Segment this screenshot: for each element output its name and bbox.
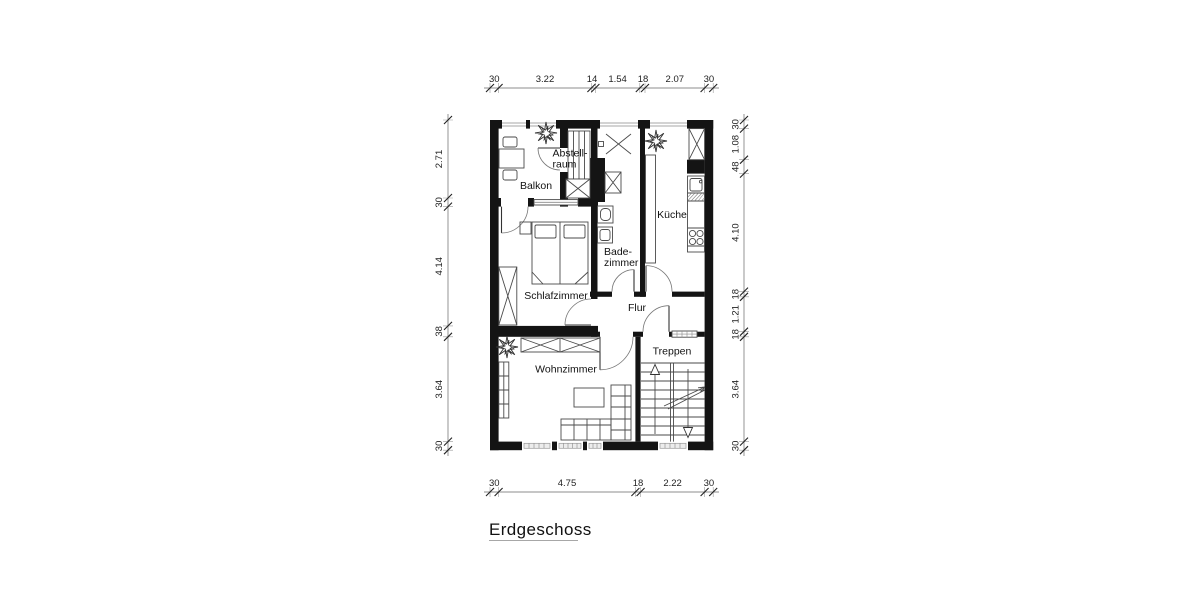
wall-right (705, 120, 714, 450)
dim-top-1: 3.22 (536, 74, 555, 85)
stove (689, 230, 703, 244)
dim-left-2: 4.14 (434, 257, 445, 276)
coffee-table (574, 388, 604, 407)
room-label-treppen: Treppen (653, 346, 692, 358)
dim-left-3: 38 (434, 326, 445, 337)
door-bathroom (612, 270, 634, 292)
window-livingroom-3 (589, 443, 601, 448)
dim-right-1: 1.08 (731, 135, 742, 154)
pillow (535, 225, 556, 238)
balcony-table (499, 149, 524, 168)
window-livingroom-1 (524, 443, 550, 448)
dim-bottom-3: 2.22 (663, 478, 682, 489)
floor-plan-drawing: Balkon Abstell- raum Küche Bade- zimmer … (0, 0, 1200, 600)
plan-title: Erdgeschoss (489, 520, 592, 539)
plant-icon (645, 130, 667, 152)
room-label-abstellraum-line2: raum (553, 159, 577, 171)
dim-right-2: 48 (731, 161, 742, 172)
dim-right-5: 1.21 (731, 305, 742, 324)
window-kitchen-top (650, 123, 687, 126)
dim-bottom-4: 30 (704, 478, 715, 489)
wall-niche-hall (672, 331, 697, 337)
entry-shaft (599, 134, 632, 154)
down-arrow-icon (684, 428, 693, 438)
room-label-wohnzimmer: Wohnzimmer (535, 364, 597, 376)
dim-bottom-1: 4.75 (558, 478, 577, 489)
window-bedroom-balcony (534, 200, 578, 205)
dim-right-7: 3.64 (731, 380, 742, 399)
window-livingroom-2 (559, 443, 581, 448)
room-label-kueche: Küche (657, 209, 687, 221)
bedroom-furniture (499, 222, 588, 325)
pillow (564, 225, 585, 238)
dimension-chain-left: 2.71 30 4.14 38 3.64 30 (434, 114, 453, 456)
door-hall-livingroom (600, 337, 633, 370)
sofa-corner (611, 385, 631, 440)
floor-plan-page: Balkon Abstell- raum Küche Bade- zimmer … (0, 0, 1200, 600)
dim-top-2: 14 (587, 74, 598, 85)
dimension-chain-bottom: 30 4.75 18 2.22 30 (484, 478, 719, 497)
kitchen-cabinet-row (646, 155, 656, 263)
dimension-chain-right: 30 1.08 48 4.10 18 1.21 18 3.64 30 (731, 114, 750, 456)
dim-right-8: 30 (731, 441, 742, 452)
plant-icon (535, 122, 557, 144)
dim-left-4: 3.64 (434, 380, 445, 399)
dim-right-3: 4.10 (731, 223, 742, 242)
window-entry-top (600, 123, 638, 126)
staircase (641, 363, 705, 442)
sideboard (521, 338, 600, 352)
dim-top-6: 30 (704, 74, 715, 85)
dim-right-6: 18 (731, 329, 742, 340)
dim-top-0: 30 (489, 74, 500, 85)
dim-bottom-0: 30 (489, 478, 500, 489)
balcony-chair (503, 170, 517, 180)
kitchen-fixtures (645, 129, 705, 263)
dim-left-0: 2.71 (434, 150, 445, 169)
sofa (561, 419, 611, 440)
door-balcony-bedroom (502, 207, 529, 233)
plant-icon (496, 336, 518, 358)
plan-title-block: Erdgeschoss (489, 520, 592, 541)
dimension-chain-top: 30 3.22 14 1.54 18 2.07 30 (484, 74, 719, 93)
door-kitchen (646, 266, 672, 292)
dim-left-5: 30 (434, 441, 445, 452)
dim-bottom-2: 18 (633, 478, 644, 489)
dim-right-4: 18 (731, 289, 742, 300)
living-room-furniture (496, 336, 631, 440)
door-hall-stairs (643, 306, 669, 332)
wall-left (490, 120, 499, 450)
dim-top-3: 1.54 (608, 74, 627, 85)
window-stairs (660, 443, 686, 448)
room-label-balkon: Balkon (520, 180, 552, 192)
room-label-badezimmer-line2: zimmer (604, 257, 639, 269)
dim-top-4: 18 (638, 74, 649, 85)
dim-left-1: 30 (434, 197, 445, 208)
dim-right-0: 30 (731, 119, 742, 130)
door-bedroom-hall (565, 299, 591, 325)
room-label-flur: Flur (628, 302, 647, 314)
balcony-chair (503, 137, 517, 147)
up-arrow-icon (651, 365, 660, 375)
balcony-furniture (499, 122, 557, 180)
room-label-schlafzimmer: Schlafzimmer (524, 290, 588, 302)
dim-top-5: 2.07 (666, 74, 685, 85)
